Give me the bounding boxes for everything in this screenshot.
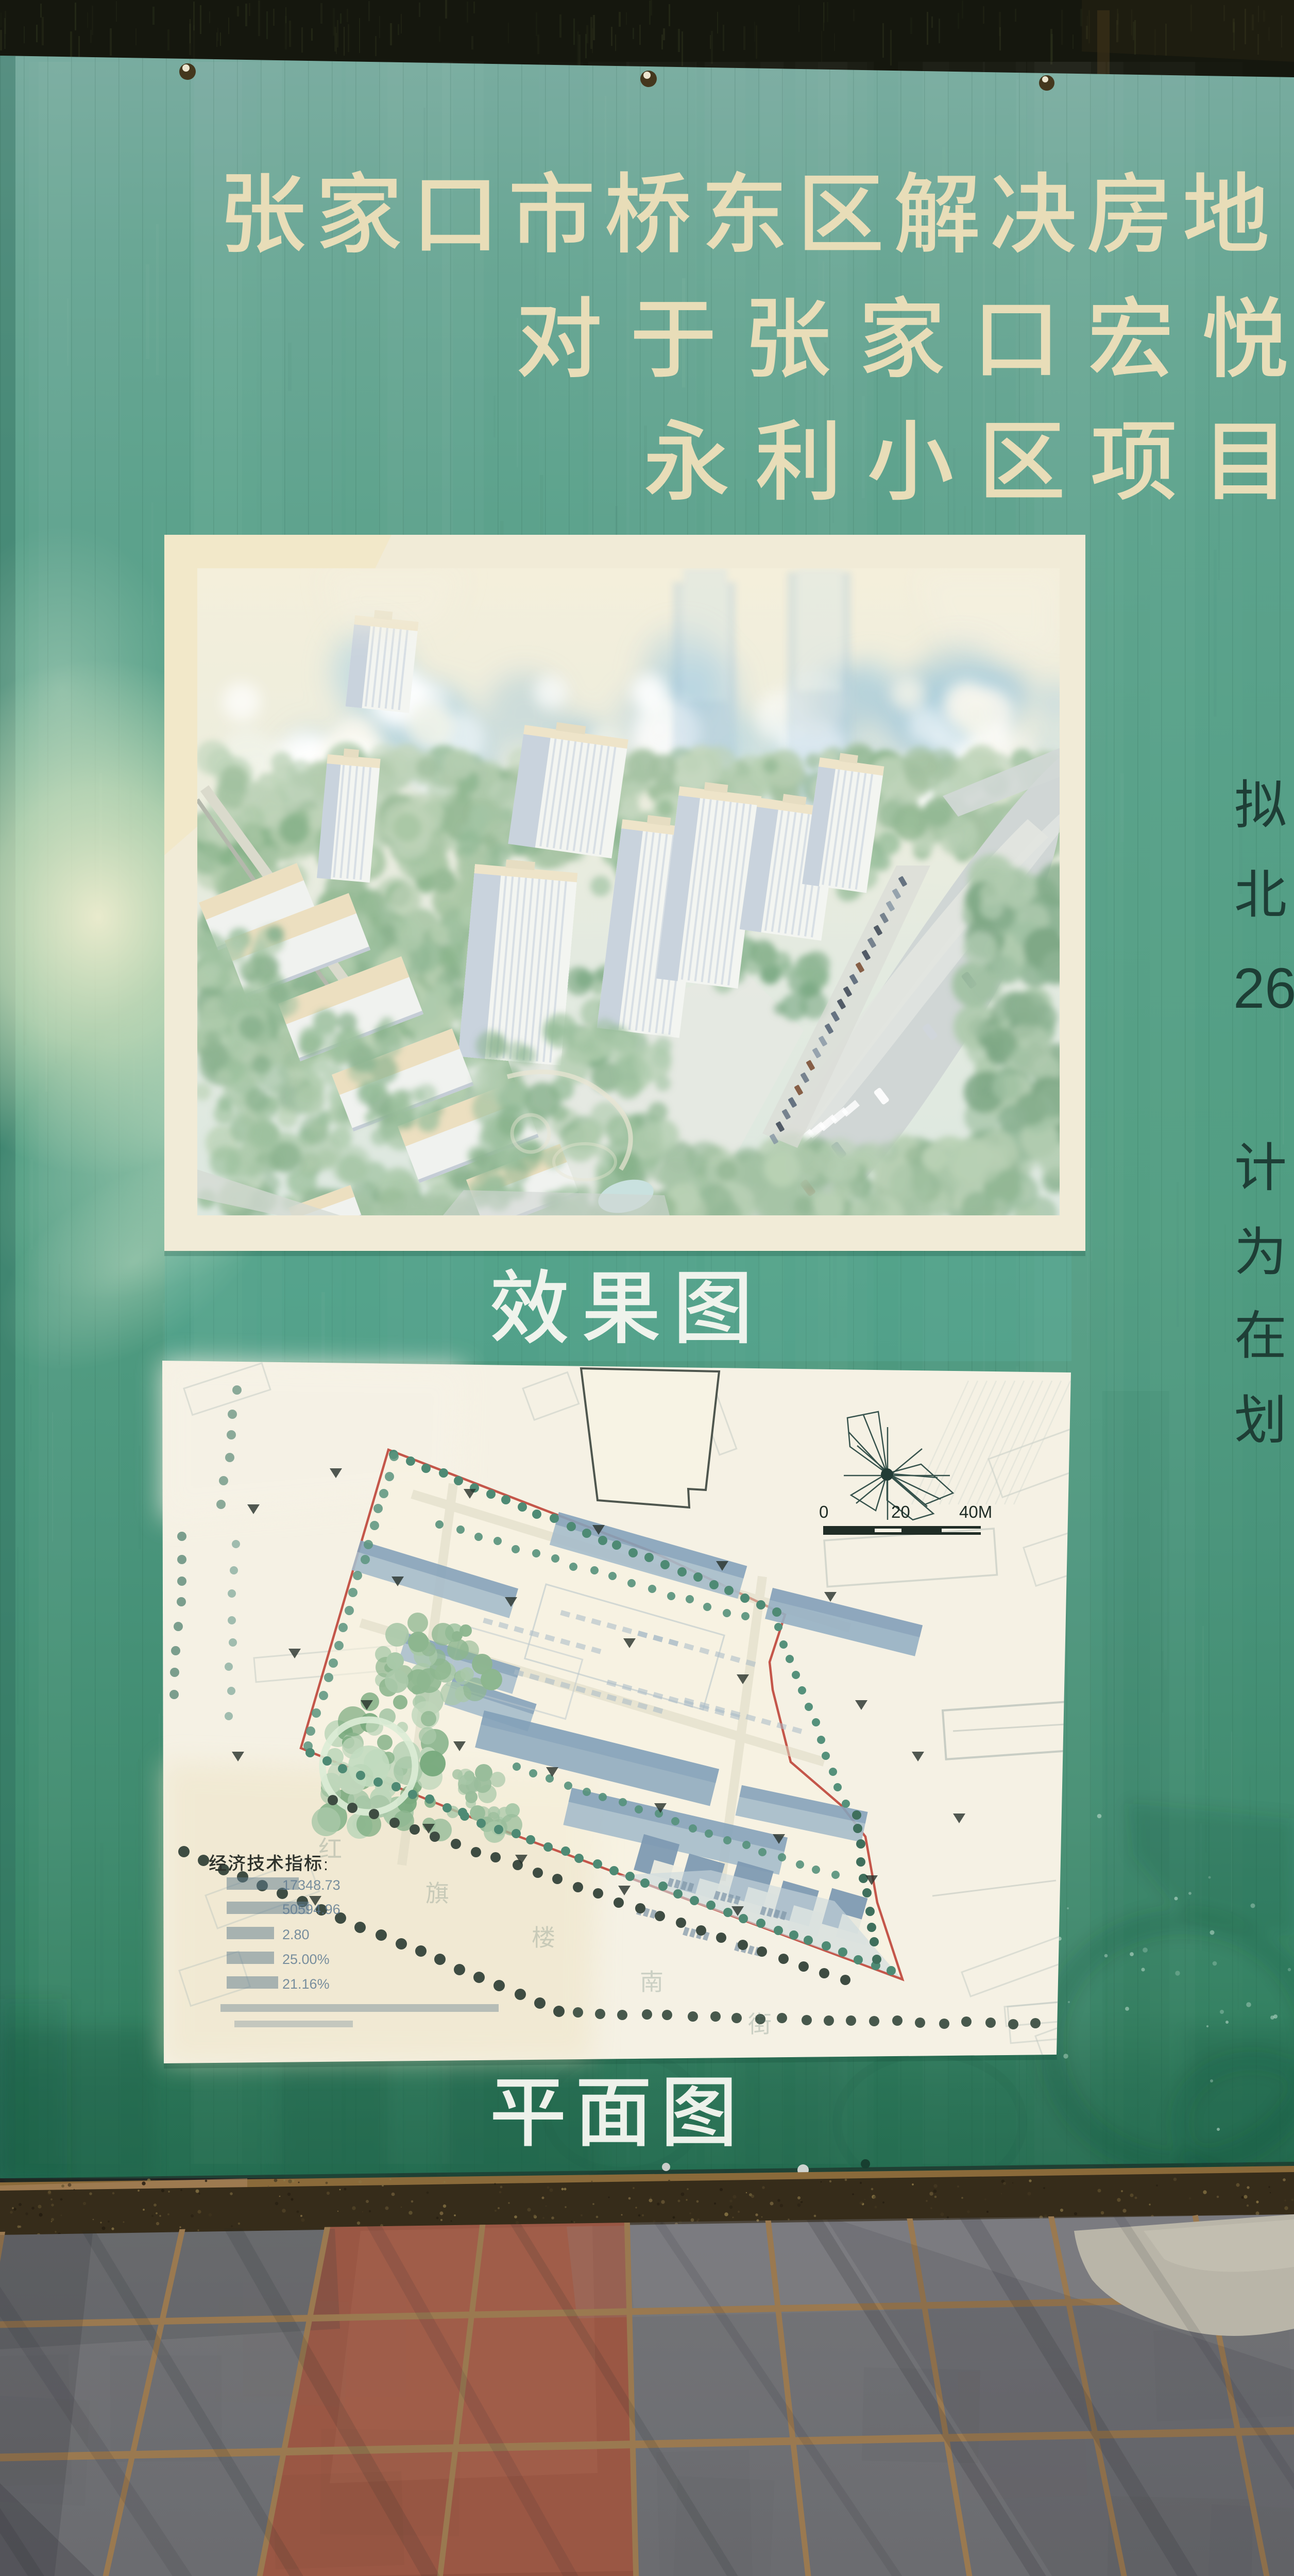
svg-text:17348.73: 17348.73 <box>282 1877 340 1893</box>
svg-text:40M: 40M <box>959 1502 992 1521</box>
svg-text:50594.96: 50594.96 <box>282 1902 340 1917</box>
svg-text:20: 20 <box>891 1502 910 1521</box>
svg-text:25.00%: 25.00% <box>282 1952 330 1967</box>
svg-text:21.16%: 21.16% <box>282 1976 330 1992</box>
svg-text:0: 0 <box>819 1502 828 1521</box>
svg-text:2.80: 2.80 <box>282 1927 310 1942</box>
svg-text::: : <box>323 1855 328 1874</box>
svg-text:26: 26 <box>1233 957 1294 1020</box>
